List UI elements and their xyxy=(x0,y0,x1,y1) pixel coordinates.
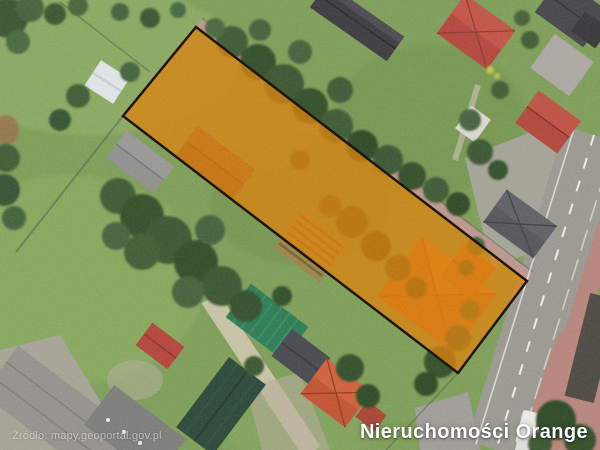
source-watermark: Źródło: mapy.geoportal.gov.pl xyxy=(12,430,162,442)
brand-label: Nieruchomości Orange xyxy=(360,421,588,444)
photo-grain-texture xyxy=(0,0,600,450)
listing-photo: Źródło: mapy.geoportal.gov.pl Nieruchomo… xyxy=(0,0,600,450)
aerial-map xyxy=(0,0,600,450)
